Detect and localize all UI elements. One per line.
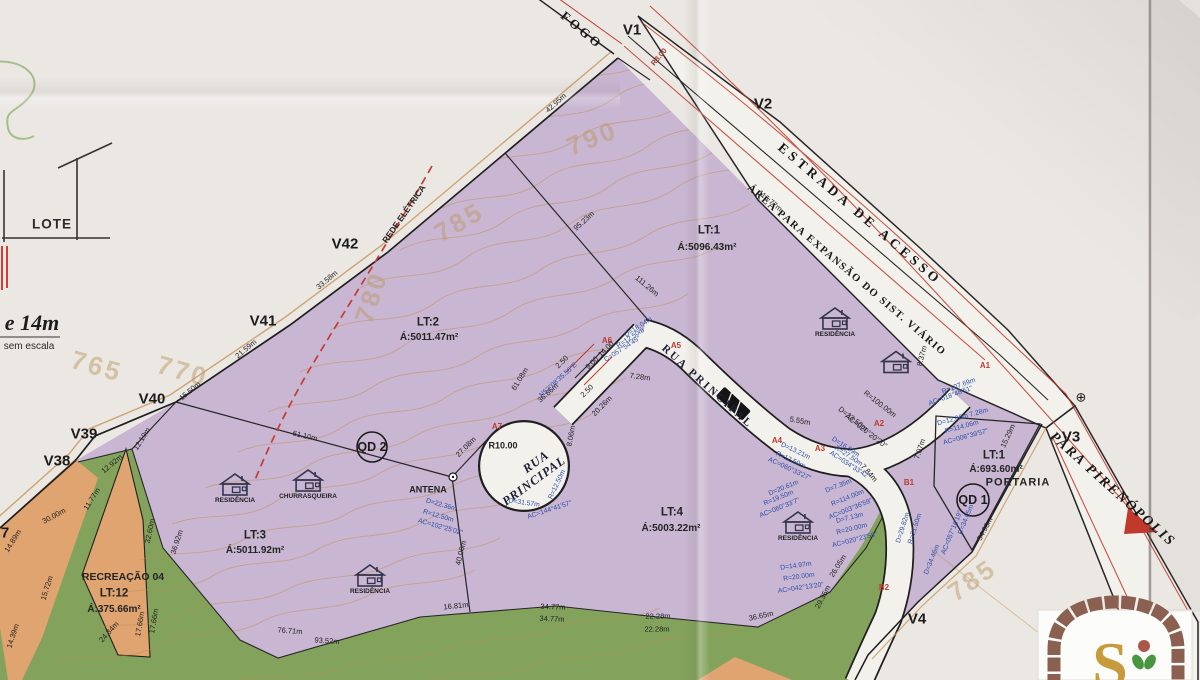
logo-dot-icon: [1138, 640, 1150, 652]
direction-arrow: [1124, 508, 1158, 534]
antenna-dot: [452, 476, 454, 478]
developer-logo: S: [1038, 602, 1192, 680]
cul-de-sac-surface: [480, 422, 568, 510]
scanned-subdivision-map: S RESIDÊNCIA: [0, 0, 1200, 680]
legend-sketch: [0, 61, 112, 337]
map-drawing: S: [0, 0, 1200, 680]
logo-letter: S: [1092, 629, 1128, 680]
